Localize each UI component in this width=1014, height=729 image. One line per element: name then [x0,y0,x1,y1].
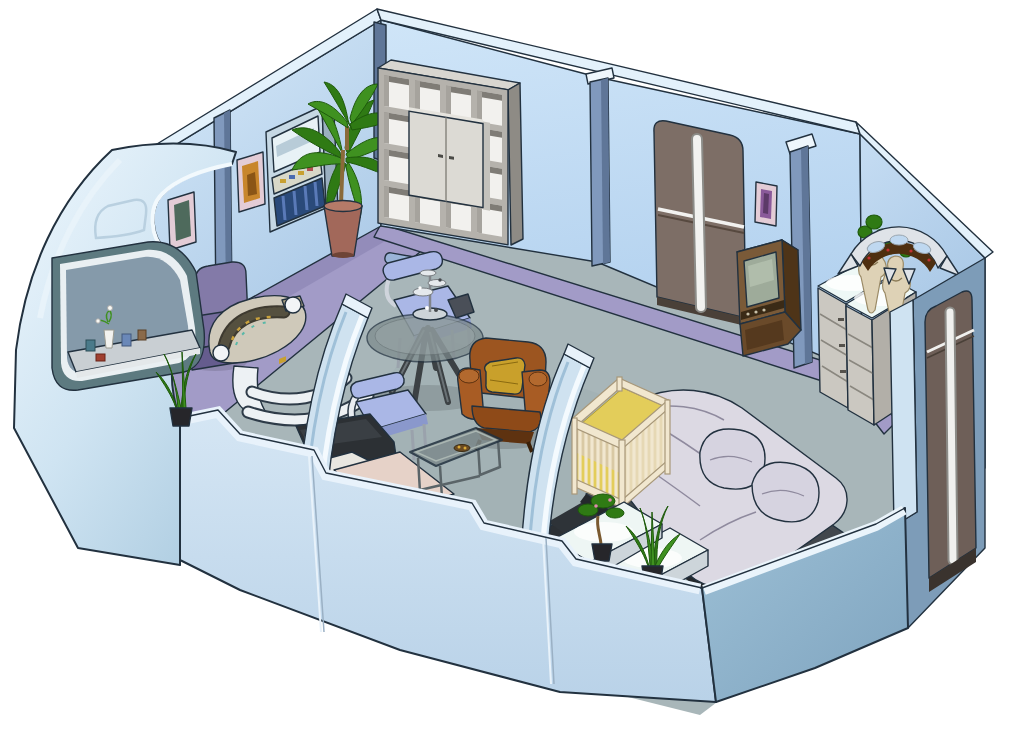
wall-art-purple [755,182,777,226]
room-illustration [0,0,1014,729]
wall-art-orange [237,152,265,212]
shelving-unit [378,60,523,245]
television [737,240,801,356]
wall-art-small [168,192,196,250]
scene-canvas [0,0,1014,729]
main-door [654,121,746,326]
shelf-cabinet [409,107,490,211]
bed-pillow [752,462,819,522]
